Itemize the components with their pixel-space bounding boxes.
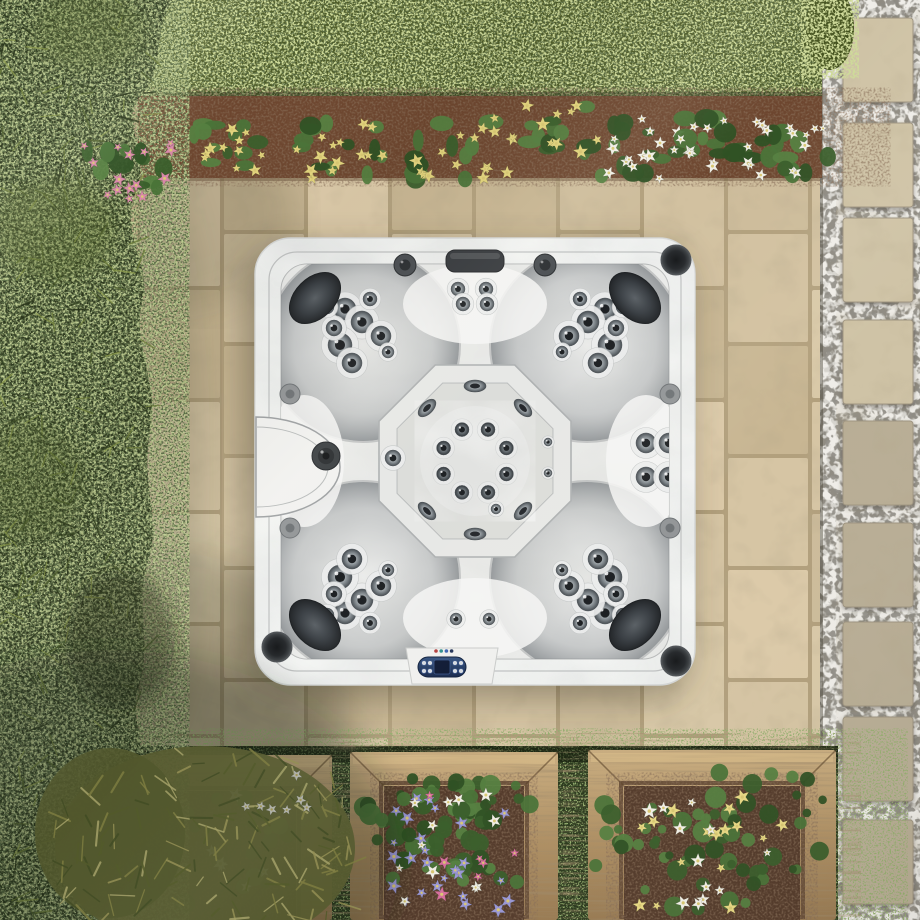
lighting-overlay (0, 0, 920, 920)
backyard-photo (0, 0, 920, 920)
backyard-scene (0, 0, 920, 920)
